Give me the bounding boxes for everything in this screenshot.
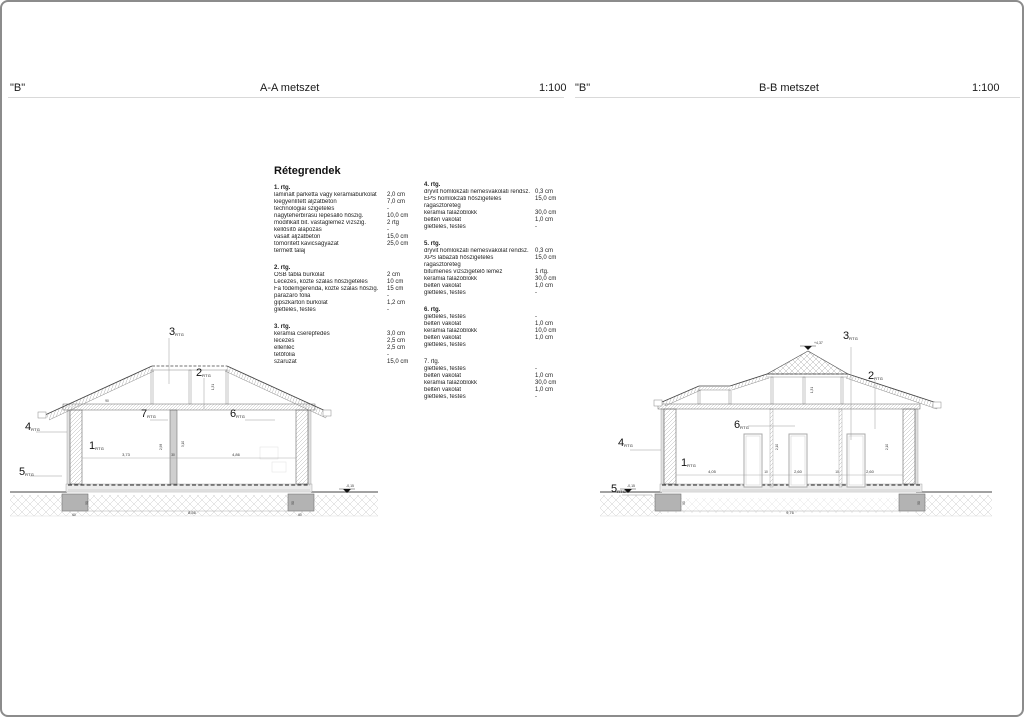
marker-bb-5: 5RTG (611, 484, 626, 497)
legend-group-5-title: 5. rtg. (424, 241, 584, 248)
dim-total-width: 8,56 (188, 510, 197, 515)
header-divider-right (575, 97, 1020, 98)
legend-row: Fa födémgerenda, közte szálas hőszig.15 … (274, 286, 434, 293)
legend-row: ragasztóréteg (424, 203, 584, 210)
section-bb-drawing: 4,05 10 2,60 10 2,60 2,10 2,10 1,31 9,76… (600, 332, 1000, 529)
dim-jamb2: 10 (835, 470, 839, 474)
dim-seg1: 4,05 (708, 469, 717, 474)
dim-door-height-1: 2,10 (775, 444, 779, 450)
legend-group-2-title: 2. rtg. (274, 265, 434, 272)
dim-attic-height: 1,31 (211, 384, 215, 390)
legend-row: dryvit homlokzati nemesvakolat rendsz.0,… (424, 248, 584, 255)
marker-aa-2: 2RTG (196, 368, 211, 381)
legend-row: gipszkarton burkolat1,2 cm (274, 300, 434, 307)
legend-row: kerámia falazóblokk30,0 cm (424, 380, 584, 387)
legend-group-7-title: 7. rtg. (424, 359, 584, 366)
legend-row: glettelés, festés- (424, 314, 584, 321)
legend-group-6: 6. rtg. glettelés, festés-beltéri vakola… (424, 307, 584, 349)
legend-row: beltéri vakolat1,0 cm (424, 217, 584, 224)
legend-group-2: 2. rtg. OSB tábla burkolat2 cmLécezés, k… (274, 265, 434, 314)
dim-seg2: 2,60 (794, 469, 803, 474)
legend-group-5: 5. rtg. dryvit homlokzati nemesvakolat r… (424, 241, 584, 297)
legend-row: glettelés, festés- (424, 366, 584, 373)
marker-bb-2: 2RTG (868, 371, 883, 384)
legend-title: Rétegrendek (274, 165, 341, 177)
level-marker-ridge: +4,37 (800, 341, 823, 350)
dim-seg3: 2,60 (866, 469, 875, 474)
section-aa-scale: 1:100 (539, 82, 567, 94)
dim-jamb1: 10 (764, 470, 768, 474)
section-aa-title: A-A metszet (260, 82, 319, 94)
ceiling-band (658, 404, 920, 409)
legend-column-2: 4. rtg. dryvit homlokzati nemesvakolati … (424, 182, 584, 411)
legend-row: XPS lábazati hőszigetelés15,0 cm (424, 255, 584, 262)
legend-row: nagyteherbírású lépésálló hőszig.10,0 cm (274, 213, 434, 220)
dim-height-right: 3,10 (181, 441, 185, 447)
section-bb-title: B-B metszet (759, 82, 819, 94)
legend-row: kellősítő alapozás- (274, 227, 434, 234)
marker-aa-7: 7RTG (141, 409, 156, 422)
legend-row: glettelés, festés- (424, 290, 584, 297)
legend-row: dryvit homlokzati nemesvakolati rendsz.0… (424, 189, 584, 196)
dim-foundation-depth-left: 50 (85, 501, 89, 505)
legend-row: beltéri vakolat1,0 cm (424, 283, 584, 290)
marker-bb-4: 4RTG (618, 438, 633, 451)
legend-row: modifikált bit. vastaglemez vízszig.2 rt… (274, 220, 434, 227)
marker-aa-1: 1RTG (89, 441, 104, 454)
marker-bb-1: 1RTG (681, 458, 696, 471)
legend-row: kerámia falazóblokk30,0 cm (424, 210, 584, 217)
section-aa-ref-label: "B" (10, 82, 25, 94)
dim-foundation-width-right: 60 (298, 513, 302, 517)
legend-row: kerámia falazóblokk30,0 cm (424, 276, 584, 283)
legend-group-4-title: 4. rtg. (424, 182, 584, 189)
marker-bb-6: 6RTG (734, 420, 749, 433)
marker-aa-5: 5RTG (19, 467, 34, 480)
gutter-left (654, 400, 662, 406)
legend-group-1-title: 1. rtg. (274, 185, 434, 192)
header-divider-left (8, 97, 564, 98)
marker-aa-6: 6RTG (230, 409, 245, 422)
legend-row: beltéri vakolat1,0 cm (424, 387, 584, 394)
legend-row: bitumenes vízszigetelő lemez1 rtg. (424, 269, 584, 276)
legend-row: vasalt aljzatbeton15,0 cm (274, 234, 434, 241)
marker-aa-3: 3RTG (169, 327, 184, 340)
floor-slab (66, 484, 312, 492)
level-ridge-value: +4,37 (814, 341, 823, 345)
legend-row: technológiai szigetelés- (274, 206, 434, 213)
legend-group-1: 1. rtg. laminált parketta vagy kerámiabu… (274, 185, 434, 255)
dim-interior-wall: 30 (171, 453, 175, 457)
legend-row: párazáró fólia- (274, 293, 434, 300)
dim-foundation-depth-right: 50 (917, 501, 921, 505)
gutter-left (38, 412, 46, 418)
legend-group-7: 7. rtg. glettelés, festés-beltéri vakola… (424, 359, 584, 401)
legend-row: glettelés, festés- (424, 394, 584, 401)
legend-group-6-title: 6. rtg. (424, 307, 584, 314)
dim-door-height-2: 2,10 (885, 444, 889, 450)
dim-total-width: 9,76 (786, 510, 795, 515)
legend-row: beltéri vakolat1,0 cm (424, 373, 584, 380)
legend-row: laminált parketta vagy kerámiaburkolat2,… (274, 192, 434, 199)
legend-row: kiegyenlített aljzatbeton7,0 cm (274, 199, 434, 206)
ceiling-band (63, 404, 315, 410)
legend-row: glettelés, festés- (424, 224, 584, 231)
legend-row: glettelés, festés- (274, 307, 434, 314)
legend-row: tömörített kavicságyazat25,0 cm (274, 241, 434, 248)
dim-foundation-depth-left: 50 (682, 501, 686, 505)
legend-group-4: 4. rtg. dryvit homlokzati nemesvakolati … (424, 182, 584, 231)
section-bb-scale: 1:100 (972, 82, 1000, 94)
roof (654, 351, 941, 409)
dim-room-right: 4,86 (232, 452, 241, 457)
drawing-sheet: "B" A-A metszet 1:100 "B" B-B metszet 1:… (0, 0, 1024, 717)
legend-row: EPS homlokzati hőszigetelés15,0 cm (424, 196, 584, 203)
furniture-hints (260, 447, 286, 472)
doors (744, 434, 865, 487)
dim-room-left: 3,73 (122, 452, 131, 457)
legend-row: ragasztóréteg (424, 262, 584, 269)
legend-row: kerámia falazóblokk10,0 cm (424, 328, 584, 335)
section-bb-ref-label: "B" (575, 82, 590, 94)
legend-row: Lécezés, közte szálas hőszigetelés10 cm (274, 279, 434, 286)
gutter-right (933, 402, 941, 408)
legend-row: beltéri vakolat1,0 cm (424, 335, 584, 342)
legend-row: termett talaj (274, 248, 434, 255)
legend-row: beltéri vakolat1,0 cm (424, 321, 584, 328)
gutter-right (323, 410, 331, 416)
marker-bb-3: 3RTG (843, 331, 858, 344)
dim-foundation-depth-right: 50 (291, 501, 295, 505)
legend-row: glettelés, festés (424, 342, 584, 349)
section-aa-drawing: 3,73 30 4,86 2,98 3,10 1,31 90 8,56 60 6… (10, 332, 380, 529)
dim-attic-height: 1,31 (810, 387, 814, 393)
level-ground-value: -0,15 (627, 484, 635, 488)
dim-foundation-width-left: 60 (72, 513, 76, 517)
legend-row: OSB tábla burkolat2 cm (274, 272, 434, 279)
legend-group-3-title: 3. rtg. (274, 324, 434, 331)
level-ground-value: -0,15 (346, 484, 354, 488)
marker-aa-4: 4RTG (25, 422, 40, 435)
dim-height-left: 2,98 (159, 444, 163, 450)
dim-ceiling-spacing: 90 (105, 399, 109, 403)
